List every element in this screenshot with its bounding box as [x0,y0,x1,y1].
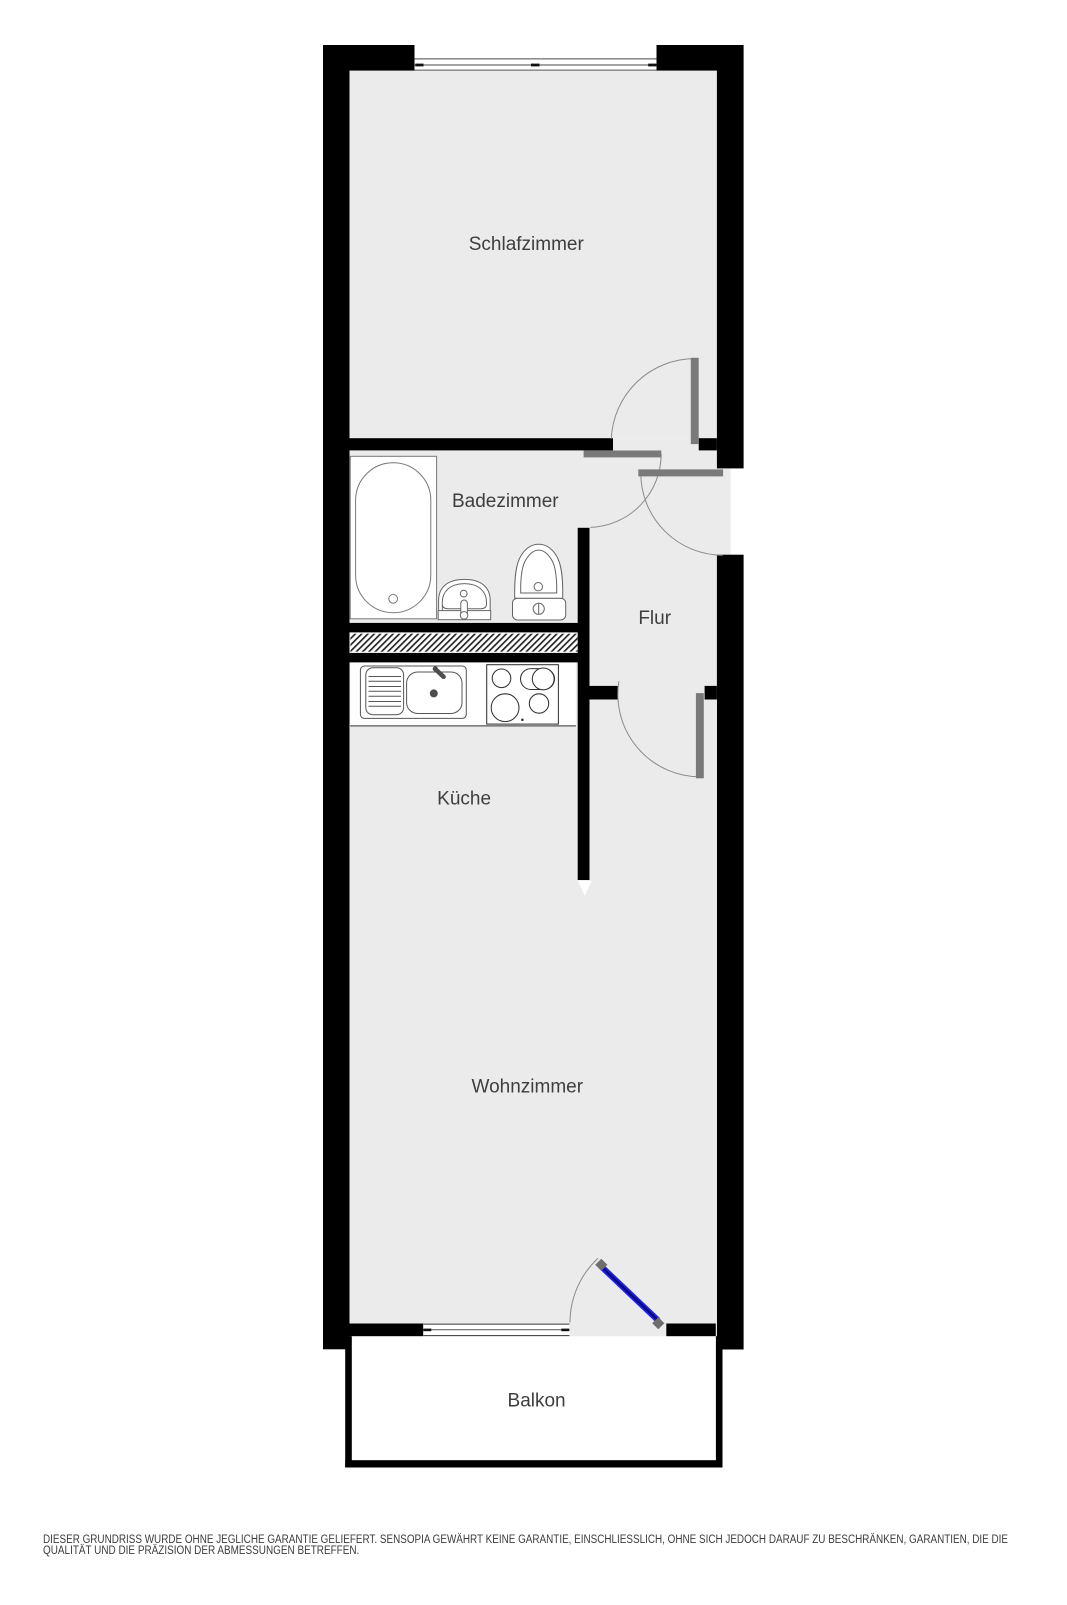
svg-text:Küche: Küche [437,788,491,809]
svg-text:DIESER GRUNDRISS WURDE OHNE JE: DIESER GRUNDRISS WURDE OHNE JEGLICHE GAR… [43,1534,1008,1546]
svg-text:Flur: Flur [638,608,671,629]
svg-text:Wohnzimmer: Wohnzimmer [472,1076,584,1097]
svg-text:QUALITÄT UND DIE PRÄZISION DER: QUALITÄT UND DIE PRÄZISION DER ABMESSUNG… [43,1545,359,1557]
svg-text:Schlafzimmer: Schlafzimmer [469,234,585,255]
svg-text:Badezimmer: Badezimmer [452,491,559,512]
svg-text:Balkon: Balkon [508,1391,566,1412]
